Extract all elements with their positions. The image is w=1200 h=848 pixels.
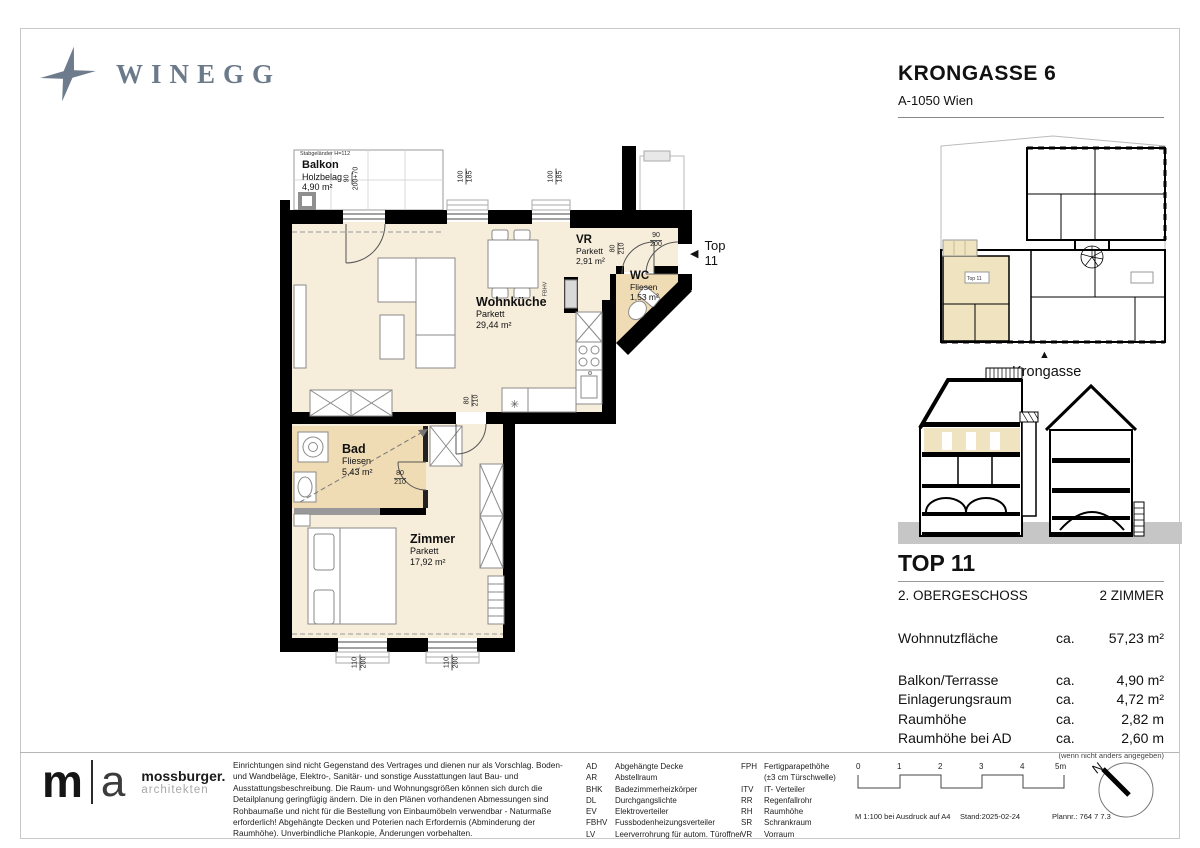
- pillow: [314, 590, 334, 624]
- room-label-balkon: Balkon Holzbelag 4,90 m²: [302, 159, 342, 192]
- entrance-label: Top 11: [704, 238, 725, 268]
- highlighted-unit: [943, 256, 1009, 341]
- railing-note: Stabgeländer H=112: [300, 151, 350, 157]
- logo-divider: [91, 760, 93, 804]
- project-title: KRONGASSE 6: [898, 62, 1164, 86]
- entrance-arrow-icon: ◀: [690, 247, 698, 260]
- building-sections: [898, 364, 1182, 548]
- stove: [576, 342, 602, 370]
- dim-window-bottom-1: 110 200: [352, 643, 369, 683]
- compass-star-icon: [40, 46, 96, 102]
- dim-bad-door: 80 210: [380, 470, 420, 487]
- dim-wc-door: 80 210: [610, 229, 627, 269]
- brand-logo: WINEGG: [40, 46, 281, 102]
- nightstand: [294, 514, 310, 526]
- dim-window-top-2: 100 185: [548, 157, 565, 197]
- dim-zimmer-door: 80 210: [464, 381, 481, 421]
- scale-bar: 0 1 2 3 4 5m: [850, 758, 1080, 798]
- unit-room-count: 2 ZIMMER: [1099, 588, 1164, 603]
- north-arrow: N: [1092, 756, 1160, 824]
- coffee-table: [380, 315, 404, 359]
- metric-row: Balkon/Terrasse ca. 4,90 m²: [898, 671, 1164, 691]
- room-label-vr: VR Parkett 2,91 m²: [576, 234, 605, 267]
- sideboard: [294, 285, 306, 368]
- unit-info: TOP 11 2. OBERGESCHOSS 2 ZIMMER Wohnnutz…: [898, 550, 1164, 760]
- room-label-wohnkueche: Wohnküche Parkett 29,44 m²: [476, 295, 547, 330]
- svg-text:1: 1: [897, 762, 902, 771]
- site-unit-label: Top 11: [967, 276, 982, 282]
- site-plan: Top 11: [935, 132, 1170, 347]
- metric-row: Einlagerungsraum ca. 4,72 m²: [898, 690, 1164, 710]
- svg-text:5m: 5m: [1055, 762, 1066, 771]
- disclaimer-text: Einrichtungen sind nicht Gegenstand des …: [233, 760, 565, 840]
- dim-balcony-door: 90 200+70: [344, 159, 361, 199]
- svg-text:4: 4: [1020, 762, 1025, 771]
- fbhv-box: [565, 280, 577, 308]
- floorplan-drawing: ✳: [280, 140, 700, 680]
- scale-print-note: M 1:100 bei Ausdruck auf A4: [855, 812, 950, 821]
- unit-title: TOP 11: [898, 550, 1164, 577]
- dim-entrance: 90 200: [636, 232, 676, 249]
- dim-window-bottom-2: 110 200: [444, 643, 461, 683]
- footer-divider: [20, 752, 1179, 753]
- plan-date: Stand:2025-02-24: [960, 812, 1020, 821]
- unit-balcony: [943, 240, 977, 256]
- brand-name: WINEGG: [116, 59, 281, 90]
- metric-row: Raumhöhe bei AD ca. 2,60 m: [898, 729, 1164, 749]
- room-label-zimmer: Zimmer Parkett 17,92 m²: [410, 532, 455, 567]
- header-rule: [898, 117, 1164, 118]
- svg-text:3: 3: [979, 762, 984, 771]
- pillow: [314, 534, 334, 570]
- architect-name: mossburger.: [141, 768, 225, 784]
- metric-row-main: Wohnnutzfläche ca. 57,23 m²: [898, 629, 1164, 649]
- street-direction-icon: ▲: [1039, 349, 1050, 361]
- room-label-bad: Bad Fliesen 5,43 m²: [342, 442, 373, 477]
- architect-sub: architekten: [141, 784, 225, 796]
- abbreviation-legend: ADAbgehängte DeckeFPHFertigparapethöhe A…: [586, 761, 846, 840]
- entrance-marker: ◀ Top 11: [690, 238, 725, 268]
- svg-text:0: 0: [856, 762, 861, 771]
- dining-table: [488, 240, 538, 288]
- section-right: [1046, 386, 1144, 537]
- unit-floor: 2. OBERGESCHOSS: [898, 588, 1028, 603]
- floorplan: ✳ Balkon Holzbelag 4,90 m² Wohnküche Par…: [280, 140, 700, 680]
- unit-rule: [898, 581, 1164, 582]
- section-left: [920, 368, 1038, 537]
- project-address: A-1050 Wien: [898, 93, 1164, 108]
- architect-logo: m a mossburger. architekten: [42, 760, 225, 804]
- project-header: KRONGASSE 6 A-1050 Wien: [898, 62, 1164, 118]
- metric-row: Raumhöhe ca. 2,82 m: [898, 710, 1164, 730]
- room-label-wc: WC Fliesen 1,53 m²: [630, 270, 659, 303]
- fbhv-label: FBHV: [542, 282, 548, 297]
- neighbour-outline: [640, 151, 684, 210]
- dim-window-top-1: 100 185: [458, 157, 475, 197]
- appliance-symbol: ✳: [510, 399, 519, 411]
- svg-text:2: 2: [938, 762, 943, 771]
